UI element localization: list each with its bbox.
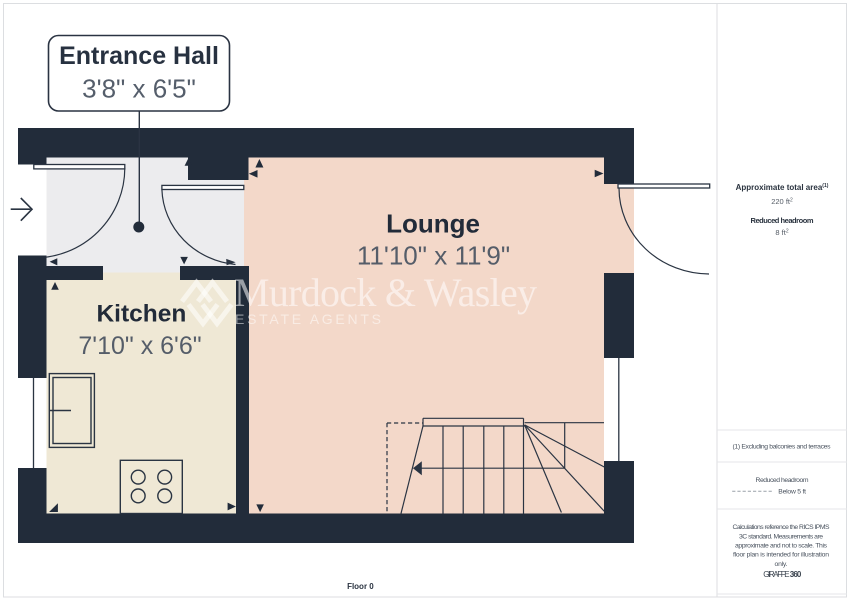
svg-text:8 ft2: 8 ft2 bbox=[775, 228, 788, 237]
svg-text:Lounge: Lounge bbox=[386, 209, 480, 239]
svg-text:Below 5 ft: Below 5 ft bbox=[778, 488, 806, 495]
svg-text:approximate and not to scale.: approximate and not to scale. This bbox=[735, 543, 828, 550]
svg-text:ESTATE AGENTS: ESTATE AGENTS bbox=[235, 311, 385, 327]
svg-text:Murdock & Wasley: Murdock & Wasley bbox=[234, 270, 537, 315]
svg-text:3'8" x 6'5": 3'8" x 6'5" bbox=[82, 74, 196, 104]
svg-text:220 ft2: 220 ft2 bbox=[771, 197, 793, 206]
svg-text:Reduced headroom: Reduced headroom bbox=[751, 216, 814, 225]
svg-text:Floor 0: Floor 0 bbox=[347, 582, 374, 591]
svg-text:only.: only. bbox=[775, 561, 788, 568]
svg-text:11'10" x 11'9": 11'10" x 11'9" bbox=[357, 241, 510, 271]
svg-text:3C standard. Measurements are: 3C standard. Measurements are bbox=[739, 533, 823, 540]
svg-text:floor plan is intended for ill: floor plan is intended for illustration bbox=[733, 552, 829, 559]
svg-text:Reduced headroom: Reduced headroom bbox=[756, 477, 809, 484]
svg-text:Kitchen: Kitchen bbox=[96, 301, 186, 328]
svg-text:360: 360 bbox=[790, 570, 802, 579]
svg-text:GIRAFFE: GIRAFFE bbox=[763, 570, 789, 579]
svg-text:Calculations reference the RIC: Calculations reference the RICS IPMS bbox=[733, 524, 830, 531]
svg-text:(1) Excluding balconies and te: (1) Excluding balconies and terraces bbox=[733, 444, 832, 451]
svg-text:7'10" x 6'6": 7'10" x 6'6" bbox=[78, 332, 201, 360]
svg-text:Entrance Hall: Entrance Hall bbox=[59, 42, 219, 70]
svg-text:Approximate total area(1): Approximate total area(1) bbox=[736, 183, 829, 192]
